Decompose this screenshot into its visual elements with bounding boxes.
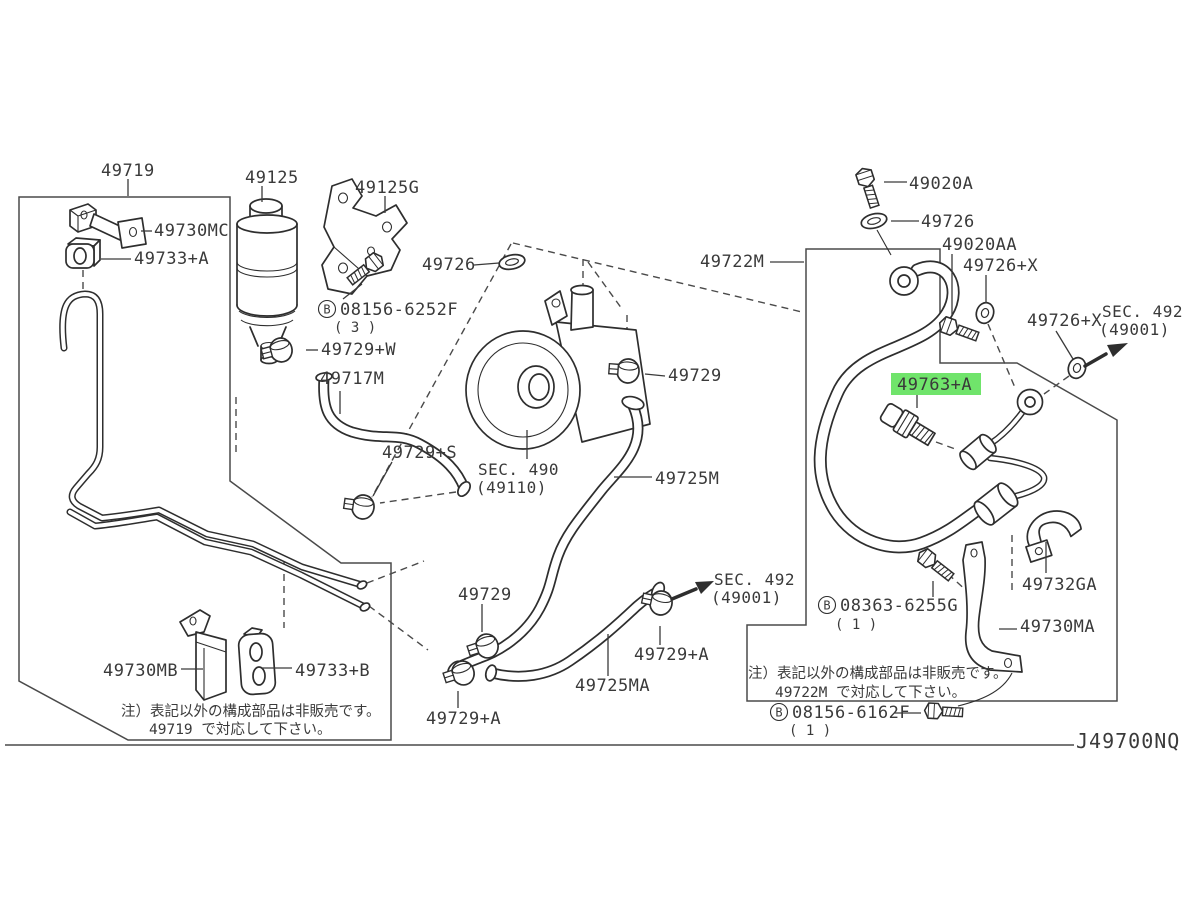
label-sec492-top-ref: (49001): [1099, 320, 1170, 339]
circled-b-6255g-letter: B: [823, 599, 830, 613]
label-sec490: SEC. 490: [478, 460, 559, 479]
label-49717m: 49717M: [320, 369, 384, 389]
hose-49722m: [820, 267, 979, 547]
label-49725m: 49725M: [655, 469, 719, 489]
label-sec490-ref: (49110): [476, 478, 547, 497]
parts-diagram-canvas: 49719 49730MC 49733+A 49125 49125G 49726…: [0, 0, 1200, 900]
bolt-49020a-icon: [855, 166, 883, 209]
grommet-49733a: [66, 238, 100, 268]
diagram-code: J49700NQ: [1076, 729, 1180, 753]
label-08156-6162f-qty: ( 1 ): [789, 723, 831, 739]
label-49730mb: 49730MB: [103, 661, 178, 681]
label-49125: 49125: [245, 168, 299, 188]
label-49725ma: 49725MA: [575, 676, 650, 696]
oring-49726-right-icon: [860, 211, 889, 231]
label-08156-6162f: 08156-6162F: [792, 703, 910, 723]
label-49729a-right: 49729+A: [634, 645, 709, 665]
label-49719: 49719: [101, 161, 155, 181]
bracket-49730ma: [963, 542, 1022, 672]
label-49125g: 49125G: [355, 178, 419, 198]
pressure-sensor-49763a: [878, 401, 938, 450]
bolt-49020aa-icon: [937, 315, 980, 344]
label-49733a: 49733+A: [134, 249, 209, 269]
circled-b-6252f-letter: B: [323, 303, 330, 317]
circled-b-6162f-letter: B: [775, 706, 782, 720]
label-49733b: 49733+B: [295, 661, 370, 681]
label-49729-bottom: 49729: [458, 585, 512, 605]
label-49722m: 49722M: [700, 252, 764, 272]
clamp-49729s-icon: [343, 492, 376, 520]
label-49732ga: 49732GA: [1022, 575, 1097, 595]
banjo-eye-lower: [1018, 390, 1043, 415]
label-49726-mid: 49726: [422, 255, 476, 275]
oring-49726-mid-icon: [498, 252, 526, 271]
label-49729s: 49729+S: [382, 443, 457, 463]
label-49726-right: 49726: [921, 212, 975, 232]
hose-49717m: [316, 372, 473, 498]
sensor-boss: [957, 432, 999, 472]
banjo-eye-top: [890, 267, 918, 295]
label-49730ma: 49730MA: [1020, 617, 1095, 637]
label-sec492-top: SEC. 492: [1102, 302, 1183, 321]
label-08363-6255g-qty: ( 1 ): [835, 617, 877, 633]
label-08363-6255g: 08363-6255G: [840, 596, 958, 616]
label-49726x-1: 49726+X: [963, 256, 1038, 276]
label-49020aa: 49020AA: [942, 235, 1017, 255]
label-49729-mid: 49729: [668, 366, 722, 386]
washer-49726x-2-icon: [1066, 355, 1089, 380]
sec492-top-arrow: [1085, 343, 1128, 366]
bolt-08363-6255g-icon: [915, 546, 956, 583]
label-49763a-highlighted: 49763+A: [897, 375, 972, 395]
bolt-08156-6162f-icon: [924, 703, 963, 720]
bracket-49732ga: [1018, 504, 1086, 562]
washer-49726x-1-icon: [974, 300, 997, 325]
sec492-bottom-arrow: [672, 581, 714, 599]
note-right-line2: 49722M で対応して下さい。: [775, 684, 966, 701]
bracket-49730mb: [180, 610, 226, 700]
label-08156-6252f-qty: ( 3 ): [334, 320, 376, 336]
grommet-49733b: [238, 628, 276, 695]
label-49020a: 49020A: [909, 174, 973, 194]
oring-to-eye-line: [877, 230, 891, 255]
note-left-line2: 49719 で対応して下さい。: [149, 721, 331, 738]
label-49730mc: 49730MC: [154, 221, 229, 241]
reservoir-49125: [237, 199, 297, 364]
label-sec492-bottom: SEC. 492: [714, 570, 795, 589]
label-49726x-2: 49726+X: [1027, 311, 1102, 331]
label-08156-6252f: 08156-6252F: [340, 300, 458, 320]
clamp-49729a-right-icon: [640, 587, 674, 617]
label-49729w: 49729+W: [321, 340, 396, 360]
note-right-line1: 注）表記以外の構成部品は非販売です。: [748, 665, 1008, 682]
label-sec492-bottom-ref: (49001): [711, 588, 782, 607]
hose-pipe-union: [971, 480, 1021, 528]
label-49729a-left: 49729+A: [426, 709, 501, 729]
note-left-line1: 注）表記以外の構成部品は非販売です。: [121, 703, 381, 720]
